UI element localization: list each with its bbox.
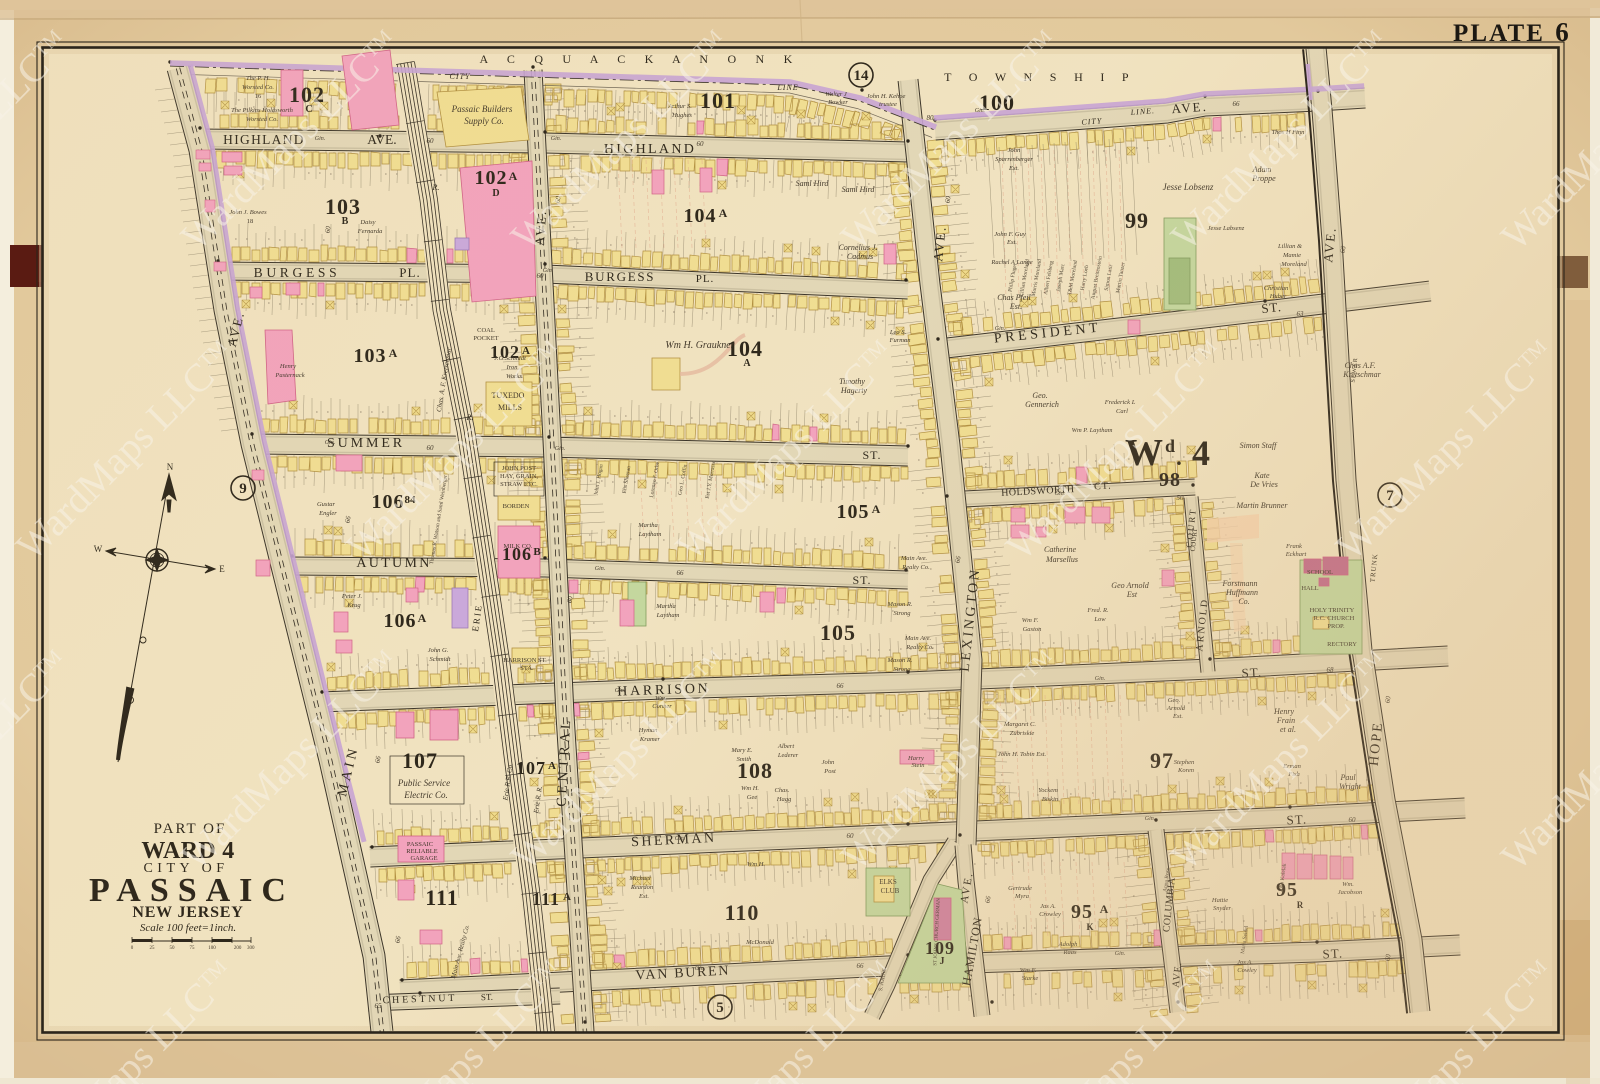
- svg-text:PLATE: PLATE: [1453, 20, 1545, 47]
